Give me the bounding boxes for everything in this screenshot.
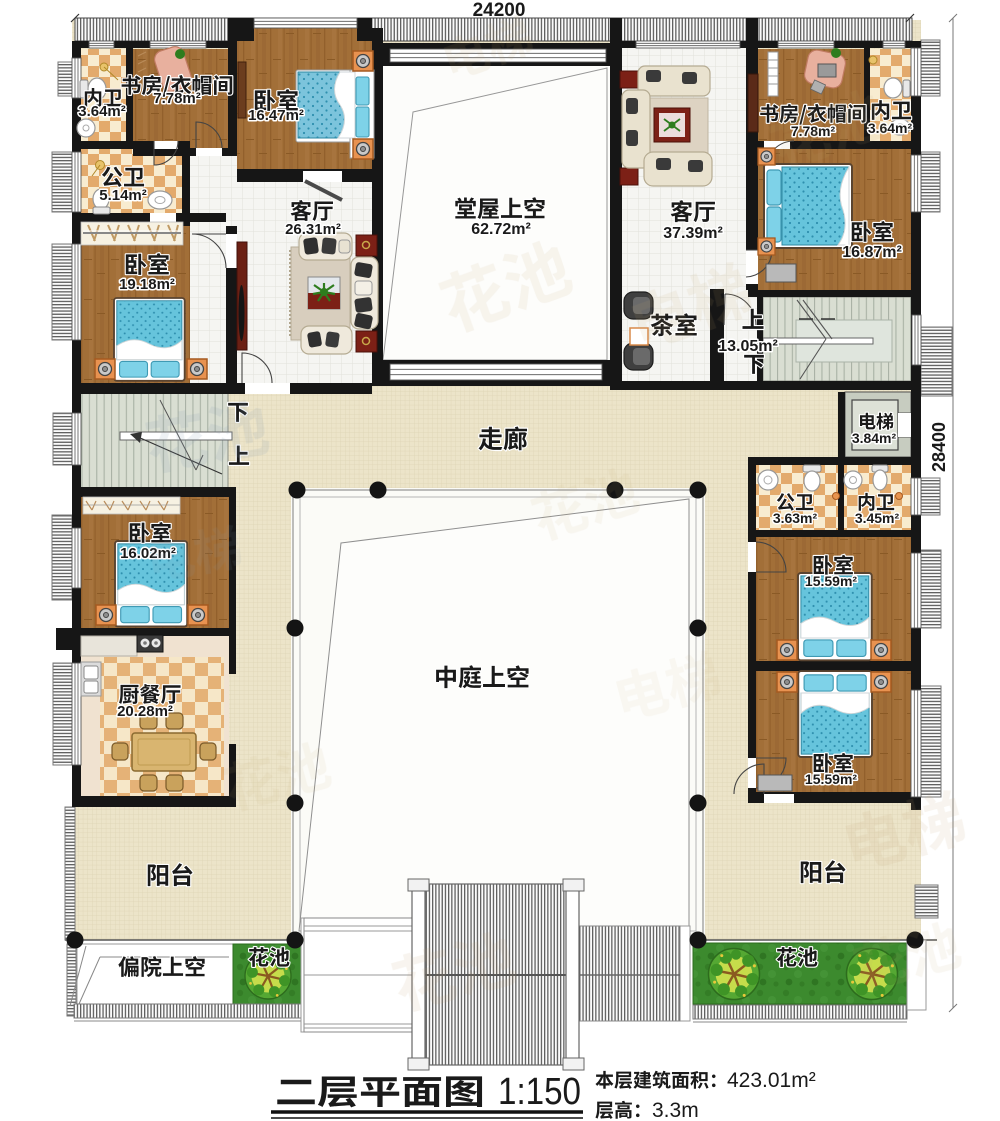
- svg-text:3.3m: 3.3m: [652, 1099, 699, 1121]
- svg-text:15.59m²: 15.59m²: [805, 771, 857, 787]
- svg-text:19.18m²: 19.18m²: [119, 276, 175, 293]
- svg-text:28400: 28400: [929, 422, 949, 472]
- svg-text:5.14m²: 5.14m²: [99, 187, 147, 204]
- svg-text:7.78m²: 7.78m²: [153, 90, 201, 107]
- svg-text:3.63m²: 3.63m²: [773, 510, 818, 526]
- svg-text:13.05m²: 13.05m²: [718, 338, 778, 355]
- svg-text:423.01m²: 423.01m²: [727, 1069, 816, 1092]
- svg-text:16.87m²: 16.87m²: [842, 244, 902, 261]
- svg-text:3.84m²: 3.84m²: [852, 430, 897, 446]
- svg-text:3.45m²: 3.45m²: [855, 510, 900, 526]
- svg-text:26.31m²: 26.31m²: [285, 221, 341, 238]
- svg-text:37.39m²: 37.39m²: [663, 225, 723, 242]
- svg-text:16.47m²: 16.47m²: [248, 107, 304, 124]
- svg-text:20.28m²: 20.28m²: [117, 703, 173, 720]
- svg-text:1:150: 1:150: [498, 1071, 581, 1113]
- svg-text:3.64m²: 3.64m²: [78, 103, 126, 120]
- svg-text:15.59m²: 15.59m²: [805, 573, 857, 589]
- svg-text:62.72m²: 62.72m²: [471, 221, 531, 238]
